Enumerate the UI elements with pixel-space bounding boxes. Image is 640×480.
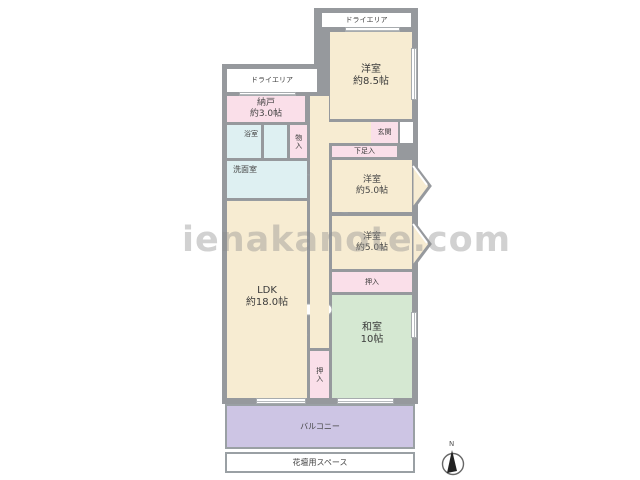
room-dry-area-top: ドライエリア <box>322 13 411 27</box>
room-size: 約3.0帖 <box>250 109 282 120</box>
room-label: 納戸 <box>250 98 282 109</box>
floorplan-canvas: ドライエリア 洋室 約8.5帖 ドライエリア 納戸 約3.0帖 浴室 物入 玄関… <box>0 0 640 480</box>
hallway-entrance <box>329 122 371 143</box>
window <box>411 312 417 338</box>
room-label: バルコニー <box>300 422 340 432</box>
room-monoire-closet: 物入 <box>290 125 307 158</box>
room-label: 和室 <box>361 322 384 334</box>
room-japanese-10: 和室 10帖 <box>332 295 412 398</box>
room-label: 押入 <box>365 278 379 286</box>
room-label: ドライエリア <box>251 76 293 84</box>
flower-bed-space: 花壇用スペース <box>225 452 415 473</box>
room-size: 約18.0帖 <box>246 297 288 309</box>
window <box>345 27 400 32</box>
room-label: 押入 <box>315 367 323 383</box>
window <box>411 48 417 100</box>
balcony: バルコニー <box>225 404 415 449</box>
room-label: LDK <box>246 285 288 297</box>
room-oshiire-side: 押入 <box>310 351 329 398</box>
room-size: 約5.0帖 <box>356 186 388 197</box>
room-label: 玄関 <box>378 128 392 136</box>
room-washroom: 洗面室 <box>227 161 307 198</box>
room-size: 10帖 <box>361 334 384 346</box>
room-label: 洋室 <box>356 175 388 186</box>
room-oshiire-upper: 押入 <box>332 272 412 292</box>
window <box>256 398 306 404</box>
room-size: 約8.5帖 <box>353 76 389 88</box>
room-nando-storage: 納戸 約3.0帖 <box>227 96 305 122</box>
room-label: 洗面室 <box>233 165 257 175</box>
entry-porch <box>400 122 413 143</box>
watermark: ienakanote.com <box>182 220 511 260</box>
compass-north-label: N <box>449 440 454 448</box>
room-label: 洋室 <box>353 64 389 76</box>
room-label: 浴室 <box>244 129 258 139</box>
room-label: 物入 <box>294 134 302 150</box>
window <box>239 92 296 96</box>
window <box>337 398 394 404</box>
room-shoe-box: 下足入 <box>332 146 397 157</box>
room-toilet <box>264 125 287 158</box>
room-western-8-5: 洋室 約8.5帖 <box>330 32 412 119</box>
room-western-5-a: 洋室 約5.0帖 <box>332 160 412 212</box>
room-label: 花壇用スペース <box>292 458 347 468</box>
compass-icon <box>443 450 464 475</box>
room-genkan: 玄関 <box>371 122 398 143</box>
room-dry-area-left: ドライエリア <box>227 69 317 92</box>
room-label: 下足入 <box>354 147 375 155</box>
room-label: ドライエリア <box>346 16 388 24</box>
